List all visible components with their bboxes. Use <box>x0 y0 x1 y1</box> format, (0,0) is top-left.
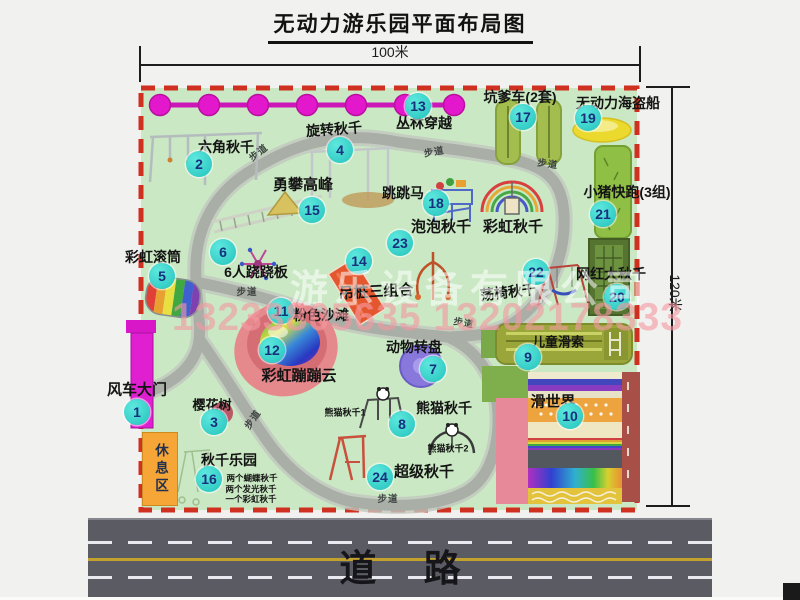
corner-mark <box>783 583 800 600</box>
watermark-phone: 13233805635 13202178333 <box>172 296 683 340</box>
attraction-badge-24: 24 <box>367 464 393 490</box>
attraction-badge-1: 1 <box>124 399 150 425</box>
dimension-label-top: 100米 <box>345 42 435 62</box>
attraction-badge-7: 7 <box>420 356 446 382</box>
page-title-text: 无动力游乐园平面布局图 <box>268 8 533 44</box>
trail-label: 步道 <box>377 491 398 505</box>
attraction-badge-4: 4 <box>327 137 353 163</box>
dimension-tick-right-top <box>646 86 690 88</box>
attraction-badge-5: 5 <box>149 263 175 289</box>
attraction-badge-18: 18 <box>423 190 449 216</box>
attraction-badge-19: 19 <box>575 105 601 131</box>
extra-label: 熊猫秋千1 <box>324 406 365 419</box>
extra-label: 一个彩虹秋千 <box>225 493 276 505</box>
dimension-tick-right-bottom <box>646 505 690 507</box>
page-title: 无动力游乐园平面布局图 <box>0 8 800 44</box>
attraction-badge-9: 9 <box>515 344 541 370</box>
extra-label: 熊猫秋千2 <box>427 442 468 455</box>
dimension-tick-top-left <box>139 46 141 82</box>
attraction-label-15: 勇攀高峰 <box>273 174 333 195</box>
attraction-label-24: 超级秋千 <box>394 461 454 482</box>
road-label: 道 路 <box>88 538 712 592</box>
attraction-badge-12: 12 <box>259 337 285 363</box>
attraction-badge-2: 2 <box>186 151 212 177</box>
attraction-badge-16: 16 <box>196 466 222 492</box>
attraction-badge-15: 15 <box>299 197 325 223</box>
attraction-label-21: 小猪快跑(3组) <box>583 182 670 202</box>
attraction-label-8: 熊猫秋千 <box>416 398 472 418</box>
attraction-badge-8: 8 <box>389 411 415 437</box>
attraction-badge-6: 6 <box>210 239 236 265</box>
attraction-badge-3: 3 <box>201 409 227 435</box>
slide-world-icon <box>482 366 640 504</box>
attraction-label-23: 泡泡秋千 <box>411 216 471 237</box>
attraction-label-1: 风车大门 <box>107 379 167 400</box>
attraction-label-6: 6人跷跷板 <box>224 262 288 282</box>
attraction-label-12: 彩虹蹦蹦云 <box>261 365 336 386</box>
attraction-badge-10: 10 <box>557 403 583 429</box>
extra-label: 彩虹秋千 <box>483 216 543 237</box>
attraction-badge-21: 21 <box>590 201 616 227</box>
dimension-tick-top-right <box>639 46 641 82</box>
dimension-line-top <box>140 64 640 66</box>
attraction-label-7: 动物转盘 <box>386 337 442 357</box>
attraction-label-18: 跳跳马 <box>382 183 424 203</box>
attraction-badge-23: 23 <box>387 230 413 256</box>
trail-label: 步道 <box>537 155 560 172</box>
attraction-badge-13: 13 <box>405 93 431 119</box>
attraction-label-5: 彩虹滚筒 <box>125 247 181 267</box>
attraction-badge-17: 17 <box>510 104 536 130</box>
rest-area: 休息区 <box>142 432 178 506</box>
park-layout-map: 无动力游乐园平面布局图 100米 120米 <box>0 0 800 600</box>
road: 道 路 <box>88 518 712 600</box>
